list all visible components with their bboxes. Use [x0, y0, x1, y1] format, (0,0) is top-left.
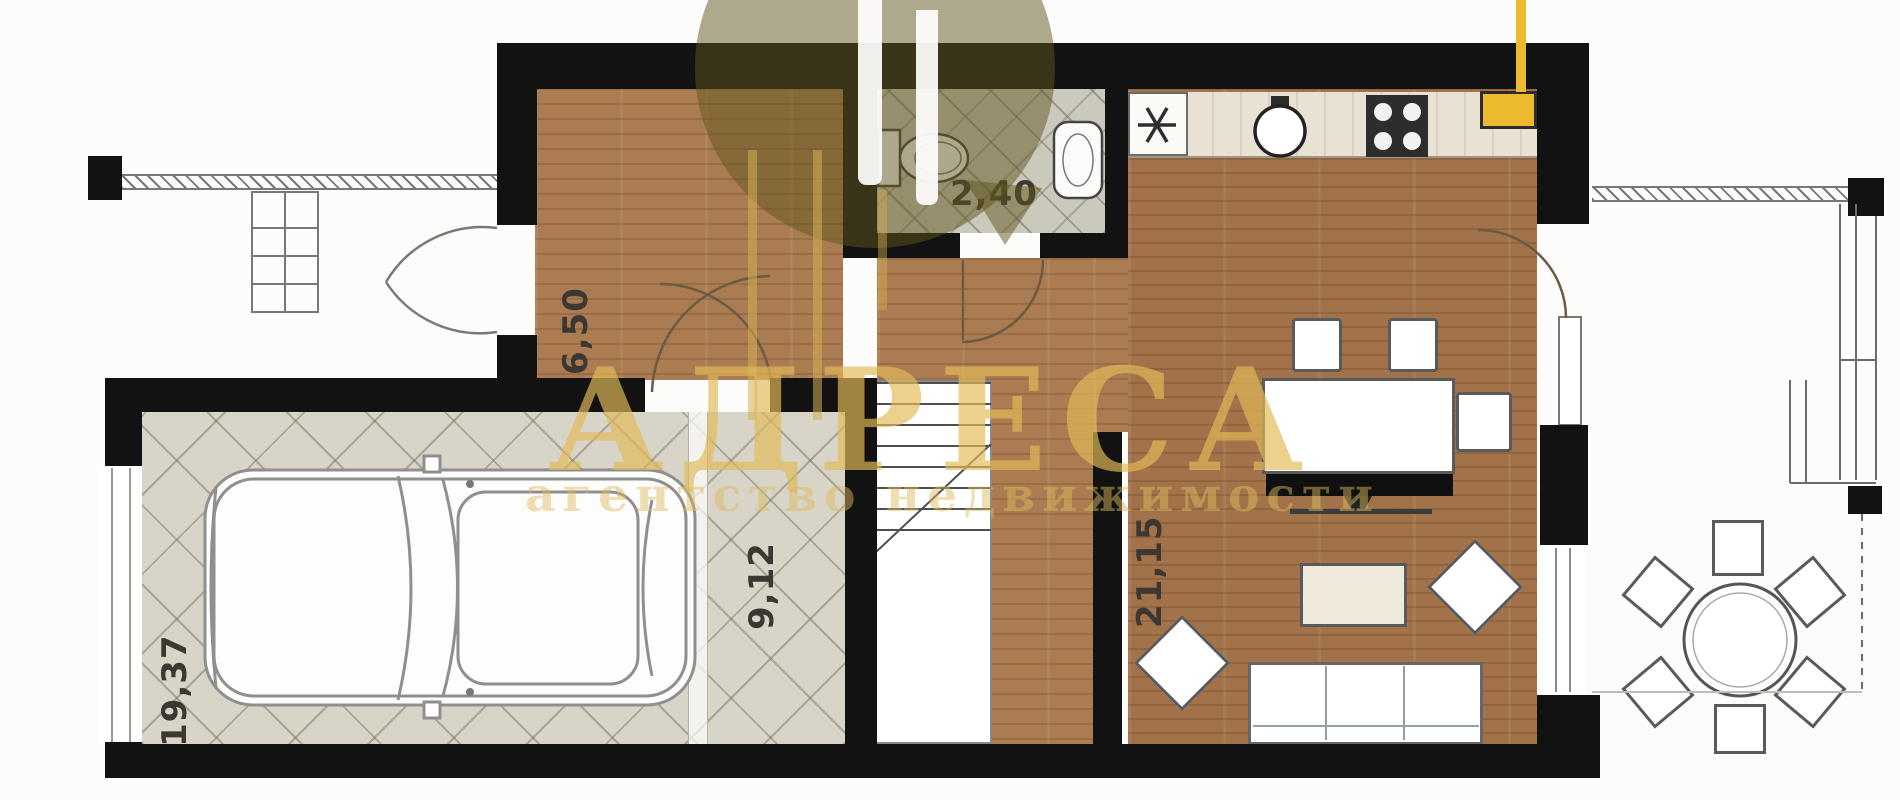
floor-plan: 19,37 6,50 2,40 9,12 21,15 АДРЕСА агентс…: [0, 0, 1900, 800]
watermark-logo-bar: [916, 10, 938, 205]
watermark-gold-strip: [878, 190, 887, 310]
watermark-tagline: агентство недвижимости: [525, 468, 1380, 523]
watermark-logo-bar: [858, 0, 882, 185]
